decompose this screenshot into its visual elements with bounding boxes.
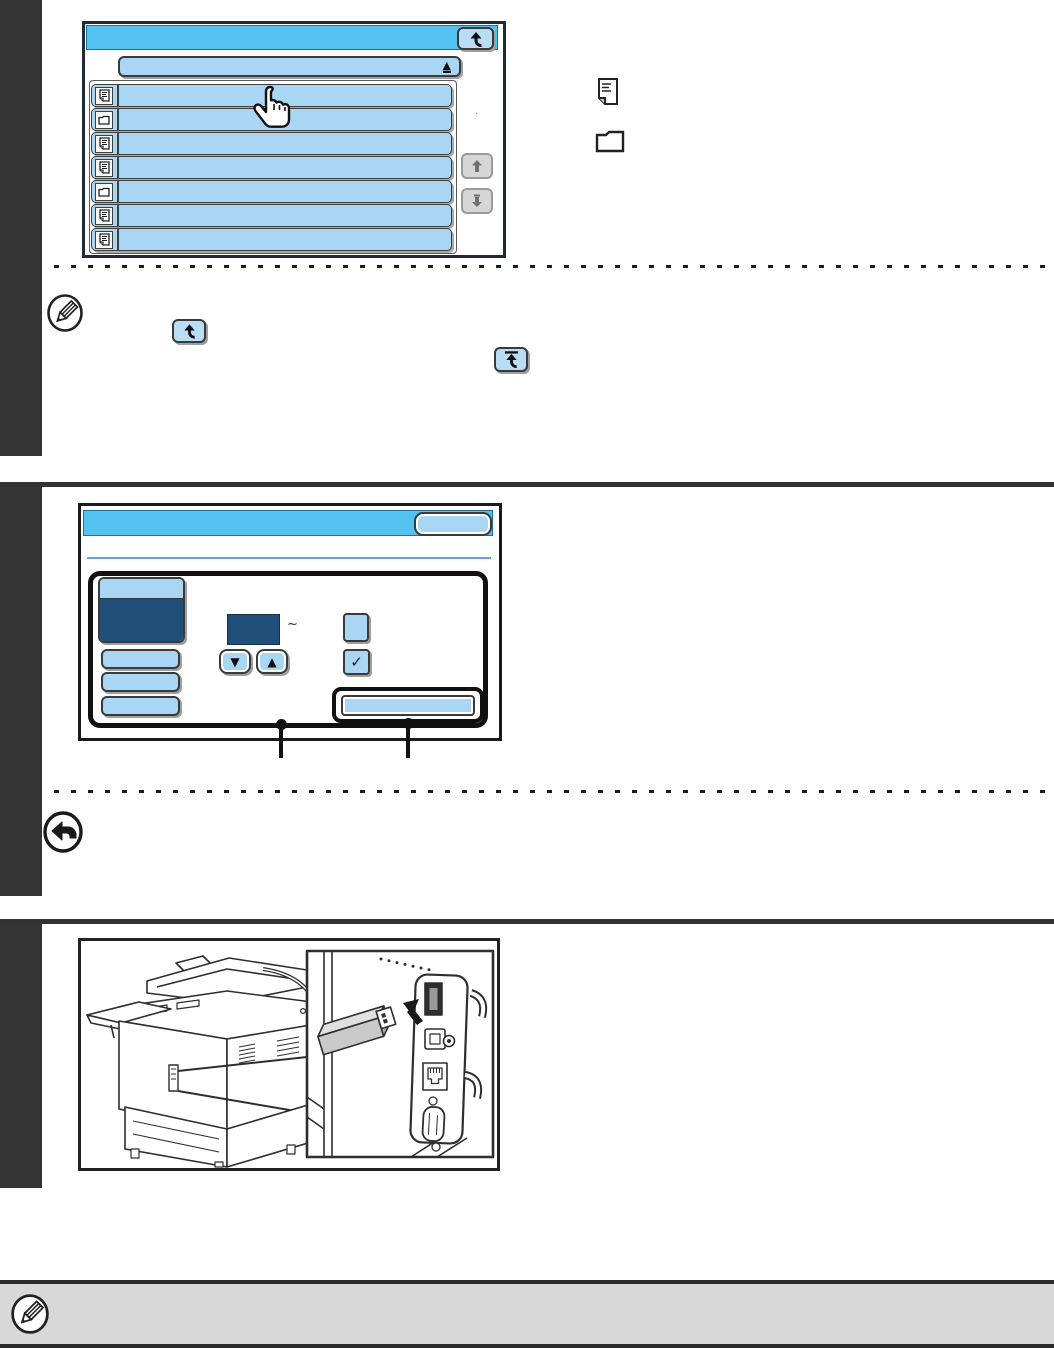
row-divider xyxy=(117,133,119,154)
list-item[interactable] xyxy=(91,204,452,227)
scroll-up-key[interactable] xyxy=(461,153,493,179)
manual-page: ▲ xyxy=(0,0,1054,1348)
option-square[interactable] xyxy=(343,613,369,642)
usb-port xyxy=(425,983,442,1015)
callout-line-2 xyxy=(406,725,410,758)
increase-key[interactable]: ▲ xyxy=(256,649,288,674)
printer-illustration xyxy=(81,941,497,1168)
row-divider xyxy=(117,109,119,130)
stray-period-mark: . xyxy=(475,106,478,117)
callout-line-1 xyxy=(279,726,283,758)
folder-icon xyxy=(595,129,625,153)
menu-key-selected[interactable] xyxy=(98,577,185,643)
touch-screen-settings: ~ ▼ ▲ ✓ xyxy=(78,503,502,741)
row-divider xyxy=(117,181,119,202)
screen2-separator xyxy=(87,557,491,559)
decrease-key[interactable]: ▼ xyxy=(219,649,251,674)
note1-inline-key-1[interactable] xyxy=(172,319,206,343)
list-item[interactable] xyxy=(91,228,452,251)
row-divider xyxy=(117,205,119,226)
back-arrow-icon xyxy=(42,810,84,854)
ethernet-port xyxy=(423,1063,447,1090)
section-rule-2 xyxy=(0,919,1054,924)
sidebar-block-1 xyxy=(0,0,42,456)
up-triangle-icon: ▲ xyxy=(267,656,276,668)
row-icon-cell xyxy=(95,111,113,129)
down-triangle-icon: ▼ xyxy=(230,656,239,668)
section-rule-1 xyxy=(0,482,1054,487)
row-icon-cell xyxy=(95,159,113,177)
list-item[interactable] xyxy=(91,180,452,203)
row-icon-cell xyxy=(95,207,113,225)
row-divider xyxy=(117,85,119,106)
row-icon-cell xyxy=(95,183,113,201)
folder-up-arrow-with-bar-icon xyxy=(503,351,520,368)
dashed-separator-1 xyxy=(54,265,1046,268)
checkbox-key[interactable]: ✓ xyxy=(343,649,370,675)
pointing-hand-cursor xyxy=(248,82,302,136)
sidebar-block-2 xyxy=(0,487,42,896)
checkmark-icon: ✓ xyxy=(350,655,363,670)
scroll-down-icon xyxy=(470,194,484,208)
connector-plate xyxy=(403,974,468,1151)
highlighted-key[interactable] xyxy=(341,695,475,716)
row-divider xyxy=(117,157,119,178)
touch-screen-file-list: ▲ xyxy=(82,21,506,258)
bottom-note-bar xyxy=(0,1280,1054,1348)
scroll-down-key[interactable] xyxy=(461,188,493,214)
menu-key-3[interactable] xyxy=(101,672,180,692)
printer-illustration-box xyxy=(78,938,500,1171)
document-icon xyxy=(99,233,110,246)
menu-key-selected-body xyxy=(100,599,183,642)
sidebar-block-3 xyxy=(0,924,42,1188)
row-icon-cell xyxy=(95,135,113,153)
document-icon xyxy=(99,89,110,102)
row-icon-cell xyxy=(95,231,113,249)
scroll-up-icon xyxy=(470,159,484,173)
pencil-note-icon xyxy=(10,1294,50,1334)
folder-up-arrow-icon xyxy=(181,323,198,339)
folder-icon xyxy=(98,115,110,125)
menu-key-2[interactable] xyxy=(101,649,180,669)
note1-inline-key-2[interactable] xyxy=(494,347,528,372)
row-icon-cell xyxy=(95,87,113,105)
folder-icon xyxy=(98,187,110,197)
tilde-mark: ~ xyxy=(287,618,298,631)
document-icon xyxy=(99,209,110,222)
screen2-ok-key[interactable] xyxy=(414,512,492,536)
menu-key-4[interactable] xyxy=(101,696,180,716)
row-divider xyxy=(117,229,119,250)
file-list xyxy=(85,24,503,255)
document-icon xyxy=(99,137,110,150)
menu-key-selected-top xyxy=(100,579,183,599)
number-display xyxy=(227,614,280,645)
document-icon xyxy=(597,78,619,105)
document-icon xyxy=(99,161,110,174)
list-item[interactable] xyxy=(91,156,452,179)
pencil-note-icon xyxy=(46,294,84,332)
dashed-separator-2 xyxy=(54,790,1046,793)
